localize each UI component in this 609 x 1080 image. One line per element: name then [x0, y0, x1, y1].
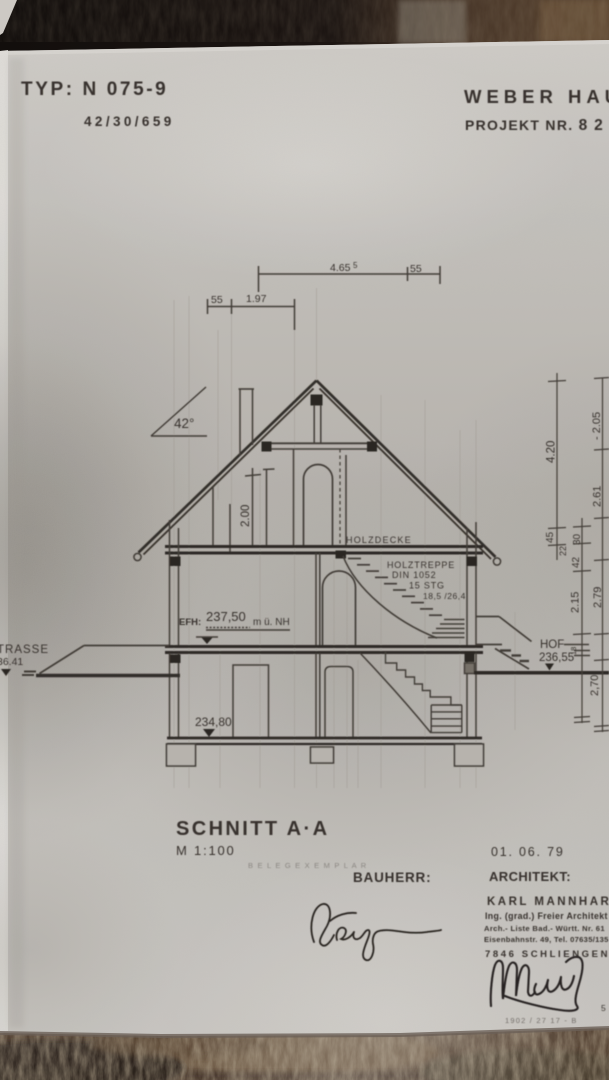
svg-text:TRASSE: TRASSE [0, 644, 49, 656]
svg-text:BAUHERR:: BAUHERR: [353, 870, 431, 885]
svg-text:2.15: 2.15 [570, 592, 582, 613]
svg-text:45: 45 [545, 531, 556, 543]
svg-text:m ü. NH: m ü. NH [253, 617, 290, 628]
svg-text:22: 22 [558, 546, 568, 556]
svg-text:Ing. (grad.) Freier Architekt: Ing. (grad.) Freier Architekt [485, 911, 608, 921]
svg-text:- 2.05: - 2.05 [591, 412, 603, 440]
svg-text:42°: 42° [174, 416, 194, 431]
svg-text:EFH:: EFH: [179, 617, 201, 628]
svg-text:HOF: HOF [540, 639, 564, 651]
svg-text:15 STG: 15 STG [409, 581, 445, 591]
svg-text:2.79: 2.79 [592, 587, 604, 608]
svg-text:4.65: 4.65 [330, 262, 351, 274]
svg-text:234,80: 234,80 [195, 715, 232, 729]
svg-text:55: 55 [410, 263, 422, 275]
svg-text:2.00: 2.00 [240, 505, 252, 527]
svg-text:B E L E G E X E M P L A R: B E L E G E X E M P L A R [248, 861, 367, 870]
svg-text:SCHNITT A·A: SCHNITT A·A [176, 818, 329, 840]
svg-text:36.41: 36.41 [0, 656, 23, 668]
svg-text:Arch.- Liste Bad.- Württ. Nr.: Arch.- Liste Bad.- Württ. Nr. 61 [484, 924, 605, 933]
svg-text:7846 SCHLIENGEN: 7846 SCHLIENGEN [485, 949, 609, 960]
svg-text:2.61: 2.61 [592, 486, 604, 507]
svg-text:42: 42 [571, 556, 582, 568]
svg-text:2,70: 2,70 [589, 675, 601, 696]
svg-text:01. 06. 79: 01. 06. 79 [491, 845, 565, 859]
svg-text:ARCHITEKT:: ARCHITEKT: [489, 869, 571, 884]
svg-text:18,5 /26,4: 18,5 /26,4 [423, 591, 466, 601]
svg-text:TYP: N 075-9: TYP: N 075-9 [21, 79, 168, 100]
svg-text:Eisenbahnstr. 49, Tel. 07635/1: Eisenbahnstr. 49, Tel. 07635/135 [484, 935, 609, 944]
svg-text:42/30/659: 42/30/659 [84, 114, 175, 129]
svg-text:4.20: 4.20 [546, 441, 558, 463]
svg-text:WEBER HAU: WEBER HAU [464, 86, 609, 107]
svg-text:1902 / 27 17 - B: 1902 / 27 17 - B [505, 1016, 578, 1025]
svg-text:DIN 1052: DIN 1052 [392, 570, 436, 580]
svg-text:1.97: 1.97 [246, 293, 267, 305]
svg-text:5: 5 [353, 261, 358, 270]
svg-text:HOLZTREPPE: HOLZTREPPE [387, 560, 455, 570]
svg-text:55: 55 [211, 294, 223, 306]
svg-text:30: 30 [572, 533, 583, 545]
svg-text:237,50: 237,50 [206, 609, 246, 624]
svg-text:M 1:100: M 1:100 [176, 843, 236, 858]
svg-text:HOLZDECKE: HOLZDECKE [346, 535, 412, 545]
svg-text:KARL MANNHAR: KARL MANNHAR [487, 896, 609, 908]
svg-text:5: 5 [601, 1003, 606, 1013]
svg-text:18: 18 [569, 647, 578, 655]
svg-text:PROJEKT NR. 8 2 8: PROJEKT NR. 8 2 8 [465, 117, 609, 134]
